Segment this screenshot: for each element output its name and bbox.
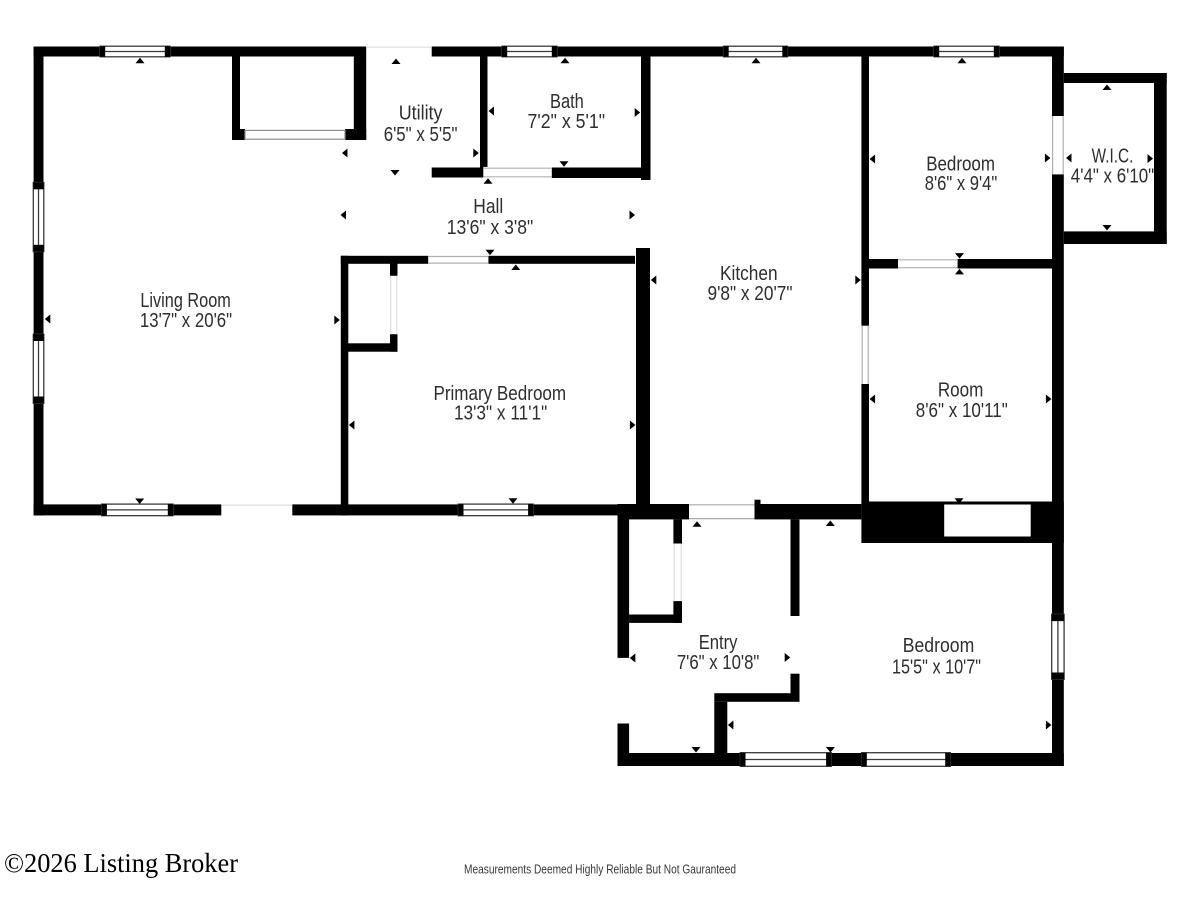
svg-text:W.I.C.: W.I.C. [1092, 146, 1134, 168]
svg-text:Measurements Deemed Highly Rel: Measurements Deemed Highly Reliable But … [464, 863, 736, 877]
svg-text:8'6" x 9'4": 8'6" x 9'4" [925, 173, 998, 195]
svg-text:6'5" x 5'5": 6'5" x 5'5" [384, 124, 458, 146]
svg-text:Kitchen: Kitchen [720, 263, 778, 285]
svg-text:Bedroom: Bedroom [903, 635, 975, 657]
svg-text:Entry: Entry [699, 632, 738, 654]
svg-text:7'2" x 5'1": 7'2" x 5'1" [528, 111, 606, 133]
svg-text:13'6" x 3'8": 13'6" x 3'8" [447, 217, 534, 239]
svg-text:Living Room: Living Room [140, 290, 230, 312]
svg-text:Utility: Utility [399, 102, 443, 124]
svg-text:13'7" x 20'6": 13'7" x 20'6" [140, 310, 232, 332]
svg-text:9'8" x 20'7": 9'8" x 20'7" [708, 283, 793, 305]
svg-text:Bath: Bath [550, 91, 584, 113]
svg-text:Room: Room [938, 380, 984, 402]
svg-text:8'6" x 10'11": 8'6" x 10'11" [916, 400, 1008, 422]
svg-text:7'6" x 10'8": 7'6" x 10'8" [677, 652, 760, 674]
svg-text:13'3" x 11'1": 13'3" x 11'1" [454, 403, 547, 425]
svg-text:4'4" x 6'10": 4'4" x 6'10" [1071, 166, 1154, 188]
svg-text:©2026 Listing Broker: ©2026 Listing Broker [4, 848, 238, 878]
svg-text:Hall: Hall [473, 196, 503, 218]
svg-text:15'5" x 10'7": 15'5" x 10'7" [892, 656, 981, 678]
